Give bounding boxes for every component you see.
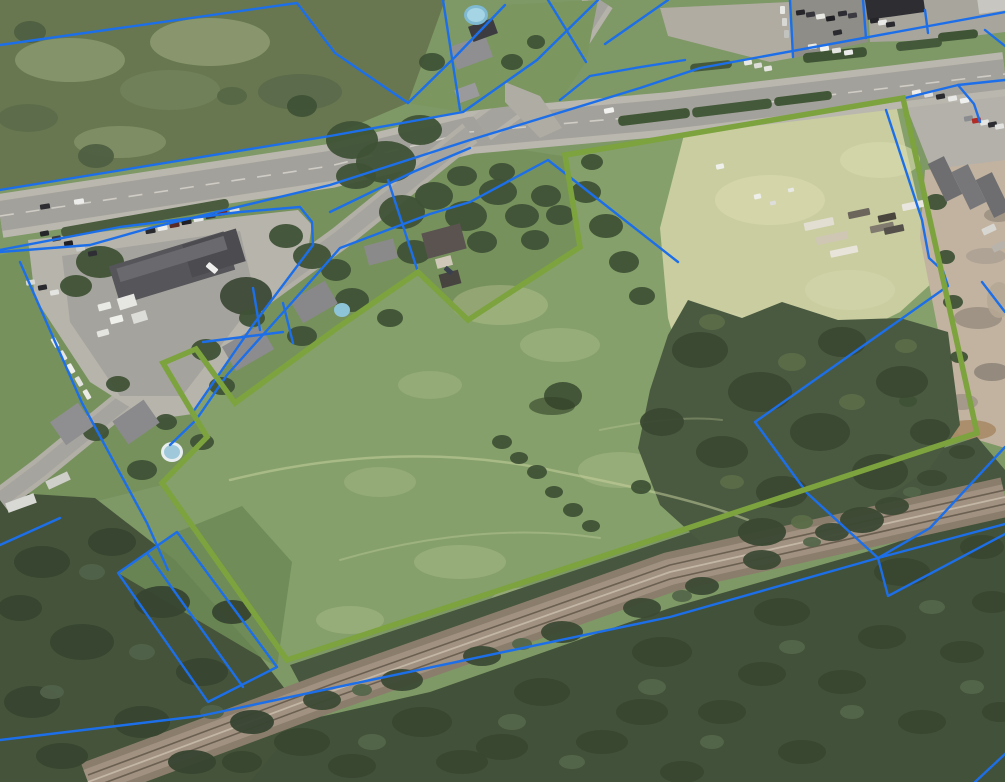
tree [501, 54, 523, 70]
tree [895, 339, 917, 353]
small-pool [334, 303, 350, 317]
tree [274, 728, 330, 756]
tree [392, 707, 452, 737]
tree [949, 445, 975, 459]
tree [505, 204, 539, 228]
tree [898, 710, 946, 734]
tree [960, 680, 984, 694]
tree [489, 163, 515, 181]
tree [527, 35, 545, 49]
tree [743, 550, 781, 570]
tree [818, 327, 866, 357]
round-pool [164, 445, 180, 459]
tree [754, 598, 810, 626]
tree [738, 662, 786, 686]
tree [529, 397, 575, 415]
tree [589, 214, 623, 238]
tree [875, 497, 909, 515]
tree [328, 754, 376, 778]
tree [640, 408, 684, 436]
tree [632, 637, 692, 667]
tree [127, 460, 157, 480]
tree [696, 436, 748, 468]
tree [60, 275, 92, 297]
tree [738, 518, 786, 546]
tree [839, 394, 865, 410]
tree [940, 641, 984, 663]
tree [791, 515, 813, 529]
tree [230, 710, 274, 734]
tree [571, 181, 601, 203]
tree [129, 644, 155, 660]
map-viewport[interactable] [0, 0, 1005, 782]
scrub-patch [150, 18, 270, 66]
tree [467, 231, 497, 253]
tree [790, 413, 850, 451]
tree [222, 751, 262, 773]
tree [629, 287, 655, 305]
tree [498, 714, 526, 730]
tree [78, 144, 114, 168]
tree [779, 640, 805, 654]
swimming-pool-water [467, 8, 485, 22]
pale-field-patch [715, 175, 825, 225]
tree [419, 53, 445, 71]
tree [168, 750, 216, 774]
vehicle [784, 30, 789, 38]
tree [903, 487, 921, 497]
tree [699, 314, 725, 330]
tree [609, 251, 639, 273]
tree [631, 480, 651, 494]
tree [239, 309, 265, 327]
map-canvas[interactable] [0, 0, 1005, 782]
tree [106, 376, 130, 392]
tree [377, 309, 403, 327]
tree [79, 564, 105, 580]
tree [581, 154, 603, 170]
scrub-patch [15, 38, 125, 82]
tree [803, 537, 821, 547]
pale-field-patch [805, 270, 895, 310]
pasture-pale-patch [414, 545, 506, 579]
tree [858, 625, 906, 649]
tree [818, 670, 866, 694]
pasture-pale-patch [344, 467, 416, 497]
tree [510, 452, 528, 464]
tree [287, 95, 317, 117]
tree [531, 185, 561, 207]
pale-field-patch [840, 142, 920, 178]
tree [447, 166, 477, 186]
tree [917, 470, 947, 486]
tree [546, 205, 574, 225]
tree [40, 685, 64, 699]
tree [576, 730, 628, 754]
tree [616, 699, 668, 725]
tree [527, 465, 547, 479]
tree [720, 475, 744, 489]
tree [217, 87, 247, 105]
tree [623, 598, 661, 618]
tree [521, 230, 549, 250]
tree [514, 678, 570, 706]
scrub-patch [120, 70, 220, 110]
tree [672, 590, 692, 602]
tree [492, 435, 512, 449]
tree [698, 700, 746, 724]
tree [14, 546, 70, 578]
tree [660, 761, 704, 782]
tree [728, 372, 792, 412]
tree [919, 600, 945, 614]
tree [582, 520, 600, 532]
tree [269, 224, 303, 248]
tree [700, 735, 724, 749]
tree [778, 353, 806, 371]
vehicle [780, 6, 785, 14]
tree [840, 705, 864, 719]
tree [415, 182, 453, 210]
tree [545, 486, 563, 498]
tree [559, 755, 585, 769]
tree [672, 332, 728, 368]
tree [88, 528, 136, 556]
tree [36, 743, 88, 769]
tree [50, 624, 114, 660]
vehicle [782, 18, 787, 26]
tree [0, 595, 42, 621]
tree [358, 734, 386, 750]
tree [563, 503, 583, 517]
tree [778, 740, 826, 764]
tree [876, 366, 928, 398]
tree [352, 684, 372, 696]
tree [479, 179, 517, 205]
rubble-pile [966, 248, 1005, 264]
scrub-patch [0, 104, 58, 132]
tree [638, 679, 666, 695]
pasture-pale-patch [520, 328, 600, 362]
tree [176, 658, 228, 686]
tree [321, 259, 351, 281]
tree [436, 750, 488, 774]
pasture-pale-patch [398, 371, 462, 399]
tree [685, 577, 719, 595]
